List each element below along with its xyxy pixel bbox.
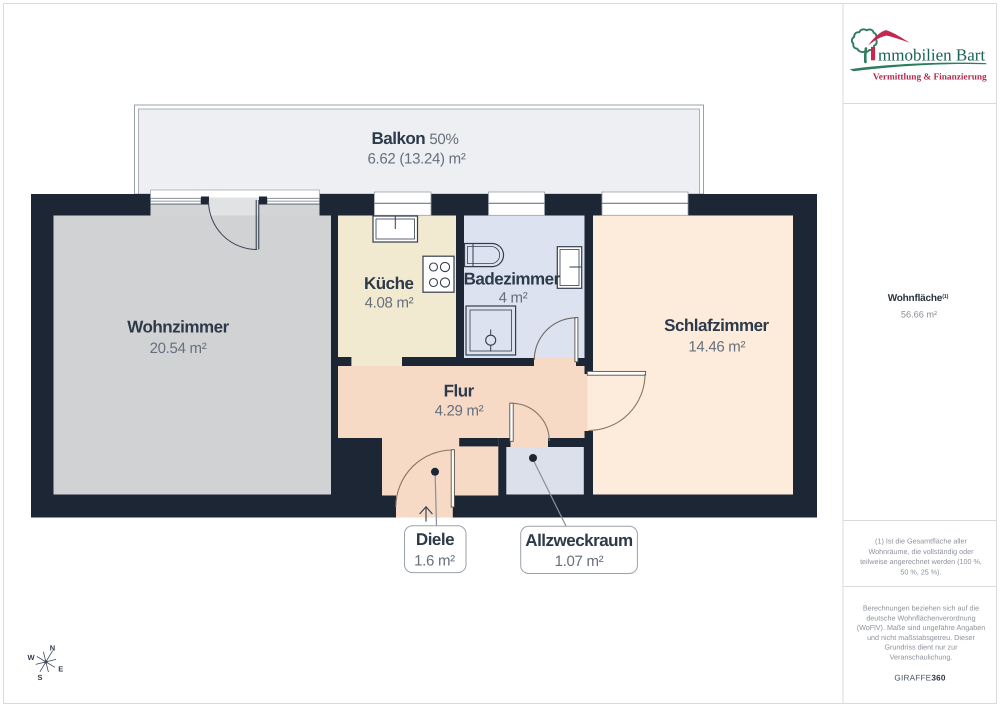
svg-text:4.08 m²: 4.08 m² — [365, 295, 414, 312]
svg-text:mmobilien Bart: mmobilien Bart — [878, 45, 985, 64]
svg-text:GIRAFFE360: GIRAFFE360 — [894, 674, 945, 683]
svg-text:Wohnzimmer: Wohnzimmer — [127, 318, 229, 337]
svg-text:Vermittlung & Finanzierung: Vermittlung & Finanzierung — [873, 72, 987, 82]
svg-text:Wohnfläche(1): Wohnfläche(1) — [888, 293, 949, 304]
svg-text:W: W — [28, 653, 36, 662]
svg-text:1.6 m²: 1.6 m² — [414, 553, 455, 570]
svg-text:und nicht maßstabsgetreu. Dies: und nicht maßstabsgetreu. Dieser — [867, 633, 975, 642]
svg-text:1.07 m²: 1.07 m² — [555, 553, 604, 570]
svg-text:Badezimmer: Badezimmer — [464, 270, 561, 289]
svg-text:Flur: Flur — [444, 382, 475, 401]
svg-text:20.54 m²: 20.54 m² — [150, 340, 207, 357]
svg-text:(1) Ist die Gesamtfläche aller: (1) Ist die Gesamtfläche aller — [875, 537, 967, 546]
svg-text:Diele: Diele — [416, 530, 454, 549]
svg-text:Balkon 50%: Balkon 50% — [371, 129, 458, 148]
svg-text:deutsche Wohnflächenverordnung: deutsche Wohnflächenverordnung — [866, 613, 975, 622]
svg-text:teilweise angerechnet werden (: teilweise angerechnet werden (100 %, — [860, 557, 982, 566]
svg-text:Grundriss dient nur zur: Grundriss dient nur zur — [884, 643, 958, 652]
svg-text:Berechnungen beziehen sich auf: Berechnungen beziehen sich auf die — [863, 604, 979, 613]
svg-text:(WoFlV). Maße sind ungefähre A: (WoFlV). Maße sind ungefähre Angaben — [857, 623, 986, 632]
svg-text:4.29 m²: 4.29 m² — [435, 403, 484, 420]
svg-text:Küche: Küche — [364, 274, 414, 293]
svg-text:Veranschaulichung.: Veranschaulichung. — [890, 653, 953, 662]
svg-text:14.46 m²: 14.46 m² — [688, 339, 745, 356]
svg-text:Wohnräume, die vollständig ode: Wohnräume, die vollständig oder — [869, 547, 975, 556]
svg-text:6.62 (13.24) m²: 6.62 (13.24) m² — [367, 151, 465, 168]
svg-text:56.66 m²: 56.66 m² — [901, 309, 937, 319]
svg-text:Allzweckraum: Allzweckraum — [525, 531, 633, 550]
svg-text:S: S — [37, 673, 42, 682]
svg-text:N: N — [50, 643, 55, 652]
svg-text:50 %, 25 %).: 50 %, 25 %). — [900, 567, 941, 576]
svg-text:E: E — [58, 664, 63, 673]
svg-text:4 m²: 4 m² — [499, 290, 528, 307]
svg-text:Schlafzimmer: Schlafzimmer — [664, 316, 769, 335]
